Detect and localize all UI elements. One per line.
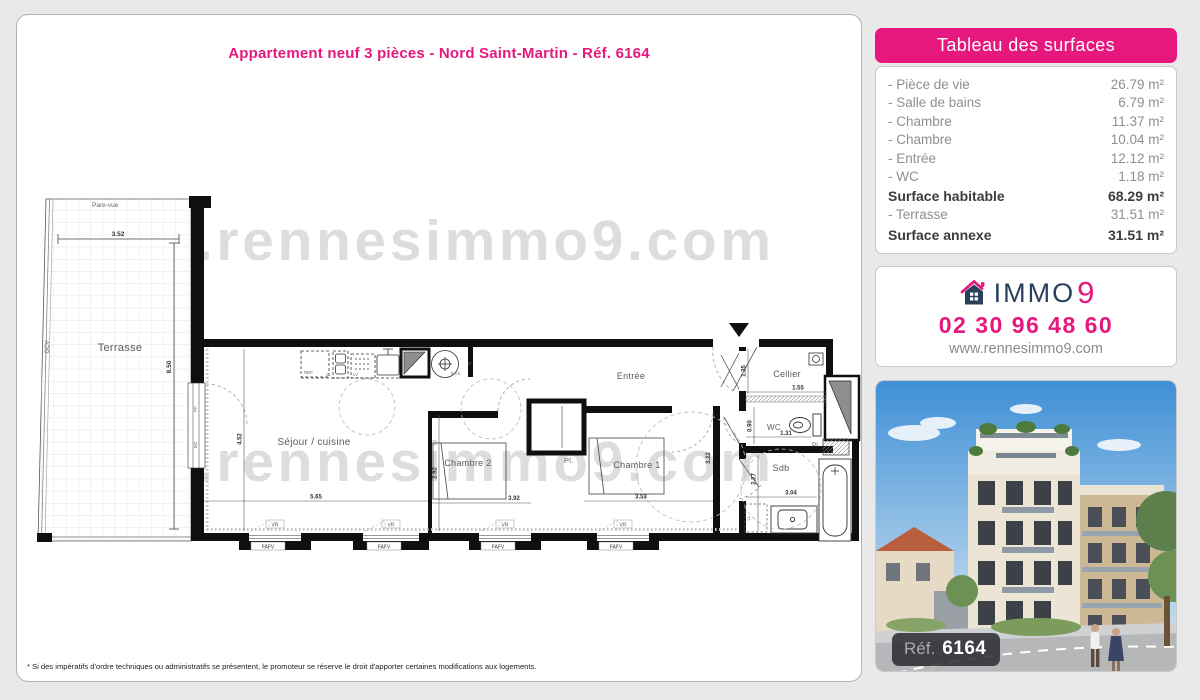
svg-text:2.27: 2.27 (752, 473, 758, 485)
svg-text:3.53: 3.53 (635, 495, 647, 501)
table-row: - WC1.18 m² (888, 168, 1164, 186)
floorplan-drawing: www.rennesimmo9.com www.rennesimmo9.com … (17, 15, 863, 683)
bathtub (819, 459, 851, 541)
ecs-label: ECS (451, 371, 460, 376)
contact-card: IMMO9 02 30 96 48 60 www.rennesimmo9.com (875, 266, 1177, 367)
svg-text:0.90: 0.90 (748, 420, 754, 432)
floorplan-panel: Appartement neuf 3 pièces - Nord Saint-M… (16, 14, 862, 682)
svg-text:VR: VR (388, 522, 395, 528)
washer-label: LL (746, 515, 751, 521)
sdb-label: Sdb (773, 463, 790, 473)
table-row: - Entrée12.12 m² (888, 150, 1164, 168)
cellier-label: Cellier (773, 369, 801, 379)
svg-text:FAFV: FAFV (378, 544, 391, 550)
gas-label: G (468, 361, 472, 366)
ref-label: Réf. (904, 639, 935, 659)
duct-shaft (825, 376, 859, 440)
svg-text:VR: VR (620, 522, 627, 528)
fridge-label: REF (304, 370, 313, 375)
kitchen-fixtures (301, 349, 459, 378)
table-row: - Pièce de vie26.79 m² (888, 76, 1164, 94)
house-icon (958, 277, 990, 309)
svg-text:1.31: 1.31 (780, 431, 792, 437)
terrace-width-dim: 3.52 (112, 231, 125, 238)
brand-number: 9 (1077, 275, 1094, 311)
ref-number: 6164 (942, 638, 986, 660)
surfaces-table-header: Tableau des surfaces (875, 28, 1177, 63)
svg-text:1.55: 1.55 (792, 386, 804, 392)
svg-text:3.04: 3.04 (785, 491, 797, 497)
reference-badge: Réf. 6164 (892, 633, 1000, 666)
pare-vue-label: Pare-vue (92, 202, 119, 209)
table-row-total: Surface annexe31.51 m² (888, 225, 1164, 245)
terrace-height-dim: 8.50 (166, 360, 173, 373)
chambre1-label: Chambre 1 (613, 460, 660, 470)
svg-text:4.52: 4.52 (238, 433, 244, 445)
table-row: - Terrasse31.51 m² (888, 206, 1164, 224)
entree-label: Entrée (617, 371, 645, 381)
toilet (790, 414, 822, 436)
building-photo: Réf. 6164 (875, 380, 1177, 672)
svg-text:Pl.: Pl. (812, 443, 820, 449)
svg-text:FAFV: FAFV (610, 544, 623, 550)
svg-text:2.92: 2.92 (433, 467, 439, 479)
surfaces-table: - Pièce de vie26.79 m² - Salle de bains6… (875, 66, 1177, 254)
footnote-text: * Si des impératifs d'ordre techniques o… (27, 662, 536, 671)
chambre2-label: Chambre 2 (444, 458, 491, 468)
brand-name: IMMO (994, 278, 1076, 309)
cellier-shelf (746, 396, 826, 402)
table-row: - Chambre11.37 m² (888, 113, 1164, 131)
svg-text:VR: VR (272, 522, 279, 528)
wc-label: WC (767, 423, 781, 432)
sejour-label: Séjour / cuisine (277, 437, 350, 448)
phone-number: 02 30 96 48 60 (939, 312, 1113, 339)
svg-text:VR: VR (502, 522, 509, 528)
svg-text:3.22: 3.22 (706, 452, 712, 464)
building-render (876, 381, 1177, 672)
bottom-window-3: FAFV VR (469, 520, 541, 550)
table-row: - Chambre10.04 m² (888, 131, 1164, 149)
terrace-label: Terrasse (98, 342, 143, 354)
table-row-total: Surface habitable68.29 m² (888, 186, 1164, 206)
svg-text:1.35: 1.35 (742, 365, 748, 377)
closet-label: Pl. (564, 456, 574, 465)
table-row: - Salle de bains6.79 m² (888, 94, 1164, 112)
brand-logo: IMMO9 (958, 276, 1095, 310)
closet-box: Pl. (529, 401, 584, 465)
svg-text:PF: PF (193, 406, 198, 412)
entrance-arrow-icon (729, 323, 749, 337)
dishwasher-label: LV (353, 372, 358, 377)
cellier-fixture (809, 353, 823, 365)
bottom-window-4: FAFV VR (587, 520, 659, 550)
terrace: Pare-vue GCV Terrasse 3.52 8.50 (37, 196, 211, 542)
website-url: www.rennesimmo9.com (949, 341, 1103, 357)
svg-text:3.92: 3.92 (508, 496, 520, 502)
svg-text:FAFV: FAFV (262, 544, 275, 550)
svg-text:M2: M2 (193, 441, 198, 448)
svg-text:5.65: 5.65 (310, 495, 322, 501)
surfaces-header-label: Tableau des surfaces (937, 35, 1115, 56)
bottom-window-1: FAFV VR (239, 520, 311, 550)
bottom-window-2: FAFV VR (353, 520, 429, 550)
svg-text:FAFV: FAFV (492, 544, 505, 550)
gcv-label: GCV (45, 340, 51, 353)
